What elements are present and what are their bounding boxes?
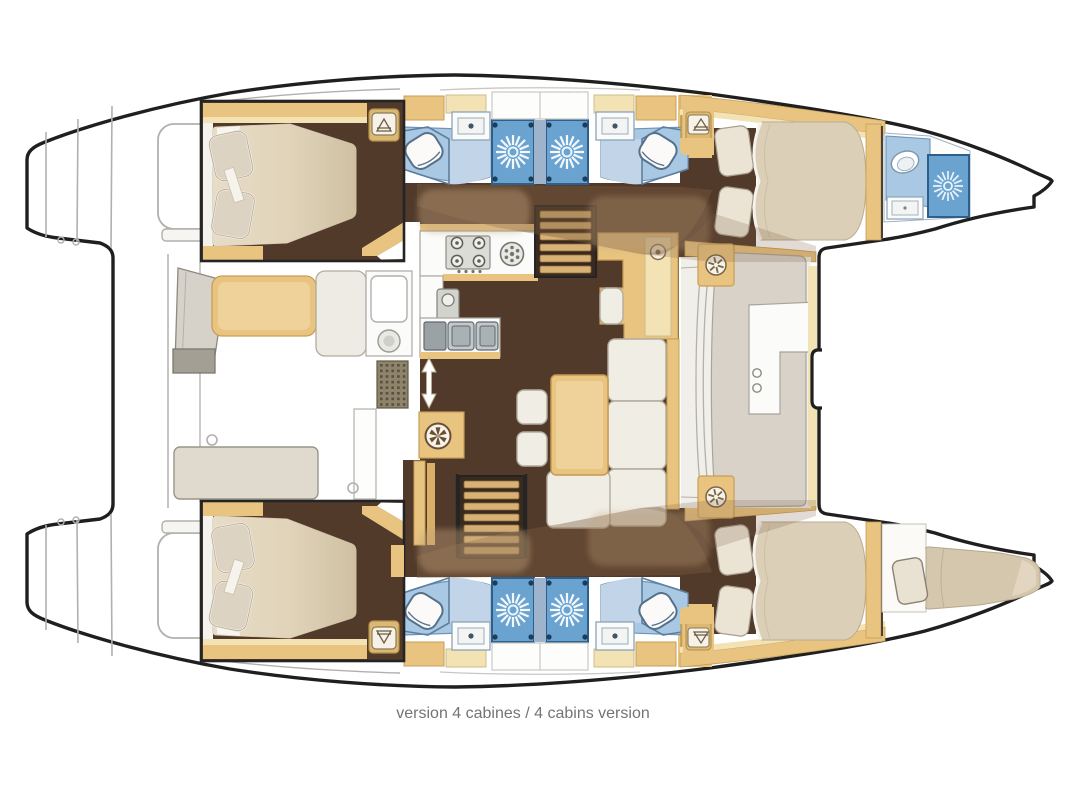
svg-text:version 4 cabines / 4 cabins v: version 4 cabines / 4 cabins version bbox=[396, 705, 649, 722]
